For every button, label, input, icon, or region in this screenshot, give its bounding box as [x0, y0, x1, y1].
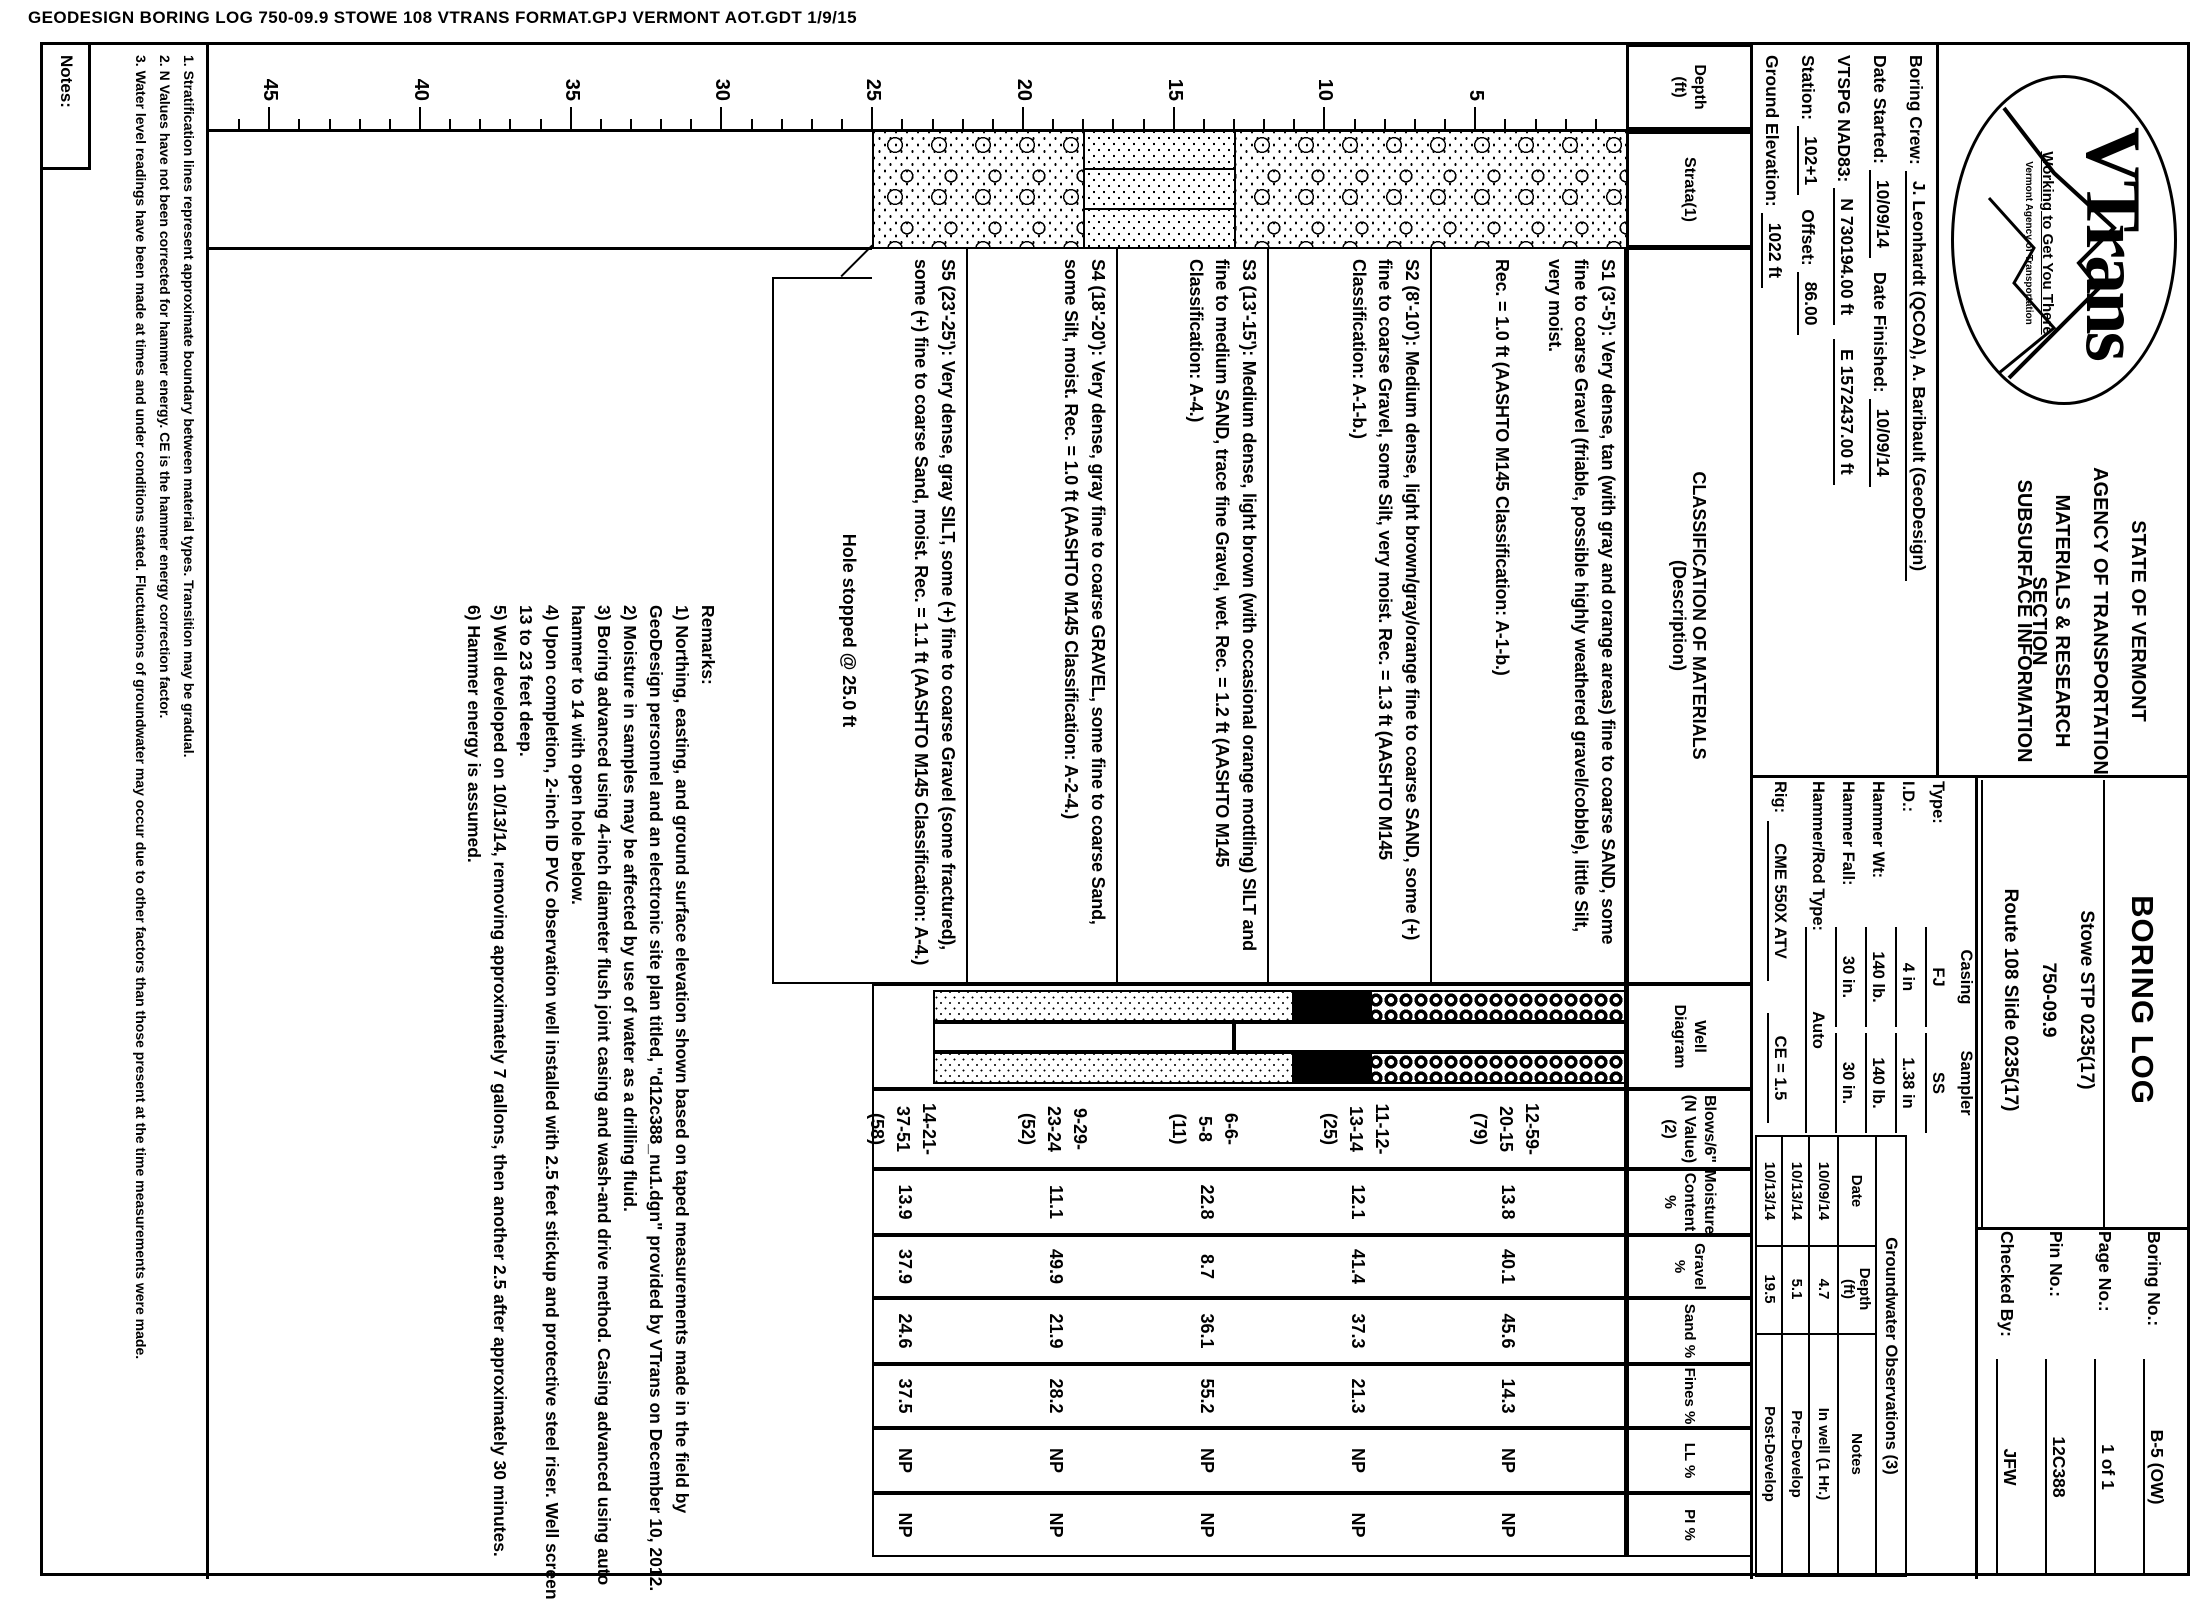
form-field-row: Pin No.:12C388 — [2045, 1231, 2075, 1575]
strata-boundary — [872, 132, 874, 247]
form-field-row: Page No.:1 of 1 — [2094, 1231, 2124, 1575]
depth-minor-tick — [329, 119, 331, 129]
equipment-value: 30 in. — [1835, 927, 1857, 1027]
gw-cell: Pre-Develop — [1783, 1333, 1810, 1575]
depth-minor-tick — [992, 119, 994, 129]
project-line: 750-09.9 — [2037, 777, 2059, 1223]
column-header-ll: LL % — [1626, 1428, 1753, 1493]
remark-item: 1) Northing, easting, and ground surface… — [643, 605, 695, 1605]
agency-line: AGENCY OF TRANSPORTATION — [2088, 465, 2111, 777]
depth-minor-tick — [1595, 119, 1597, 129]
gw-col-header: Depth (ft) — [1839, 1245, 1873, 1333]
pi-value-S5: NP — [894, 1493, 915, 1557]
fines-value-S2: 21.3 — [1347, 1364, 1368, 1428]
info-row: Date Started:10/09/14Date Finished:10/09… — [1869, 55, 1899, 771]
equipment-value: 140 lb. — [1865, 1033, 1887, 1133]
depth-major-tick — [419, 107, 421, 129]
gw-cell: 10/09/14 — [1810, 1137, 1837, 1245]
form-fields: Boring No.:B-5 (OW)Page No.:1 of 1Pin No… — [1979, 1231, 2179, 1575]
depth-minor-tick — [811, 119, 813, 129]
depth-label: 20 — [1012, 51, 1035, 101]
agency-line: STATE OF VERMONT — [2126, 465, 2149, 777]
depth-minor-tick — [932, 119, 934, 129]
gw-cell: In well (1 Hr.) — [1810, 1333, 1837, 1575]
column-header-gravel: Gravel % — [1626, 1235, 1753, 1298]
depth-minor-tick — [1504, 119, 1506, 129]
depth-minor-tick — [298, 119, 300, 129]
depth-label: 30 — [710, 51, 733, 101]
depth-major-tick — [1474, 107, 1476, 129]
sand-value-S2: 37.3 — [1347, 1298, 1368, 1364]
fines-value-S3: 55.2 — [1196, 1364, 1217, 1428]
logo-org: Vermont Agency of Transportation — [2023, 78, 2034, 408]
equipment-value: 1.38 in — [1895, 1033, 1917, 1133]
depth-minor-tick — [962, 119, 964, 129]
remarks-block: Remarks:1) Northing, easting, and ground… — [461, 605, 721, 1605]
form-field-value: 12C388 — [2045, 1359, 2069, 1575]
pi-value-S4: NP — [1045, 1493, 1066, 1557]
form-field-value: 1 of 1 — [2094, 1359, 2118, 1575]
agency-line: SUBSURFACE INFORMATION — [2012, 465, 2035, 777]
remark-item: 3) Boring advanced using 4-inch diameter… — [565, 605, 617, 1605]
form-title: BORING LOG — [2107, 777, 2177, 1223]
depth-minor-tick — [1414, 119, 1416, 129]
moisture-value-S3: 22.8 — [1196, 1169, 1217, 1235]
depth-label: 15 — [1163, 51, 1186, 101]
project-block: Stowe STP 0235(17)750-09.9Route 108 Slid… — [1983, 777, 2103, 1223]
strata-layer-sand-gravel — [1234, 132, 1626, 247]
sample-description: S2 (8'-10'): Medium dense, light brown/g… — [1346, 259, 1426, 972]
pi-value-S3: NP — [1196, 1493, 1217, 1557]
depth-minor-tick — [509, 119, 511, 129]
depth-major-tick — [871, 107, 873, 129]
strata-layer-sand-gravel — [872, 132, 1083, 247]
depth-minor-tick — [1263, 119, 1265, 129]
strata-layer-layered-fine — [1083, 132, 1234, 247]
note-item: 1. Stratification lines represent approx… — [177, 55, 201, 1535]
divider — [1936, 45, 1939, 778]
hammer-efficiency: CE = 1.5 — [1767, 1013, 1789, 1123]
divider — [2103, 780, 2105, 1227]
rig-label: Rig: — [1770, 781, 1789, 813]
depth-label: 35 — [560, 51, 583, 101]
well-annulus-chips — [1370, 1052, 1626, 1084]
equipment-value: FJ — [1925, 927, 1947, 1027]
rotated-sheet: VTrans Working to Get You There Vermont … — [0, 0, 2200, 1610]
equipment-value: 30 in. — [1835, 1033, 1857, 1133]
column-header-fines: Fines % — [1626, 1364, 1753, 1428]
fines-value-S1: 14.3 — [1497, 1364, 1518, 1428]
well-pipe-riser — [1234, 1022, 1626, 1052]
column-header-pi: PI % — [1626, 1493, 1753, 1557]
column-header-moisture: Moisture Content % — [1626, 1169, 1753, 1235]
info-label: Offset: — [1797, 209, 1818, 271]
classification-block-S3: S3 (13'-15'): Medium dense, light brown … — [1116, 249, 1267, 982]
depth-minor-tick — [449, 119, 451, 129]
gravel-value-S2: 41.4 — [1347, 1235, 1368, 1298]
boring-log-page: { "print_header": "GEODESIGN BORING LOG … — [0, 0, 2200, 1610]
column-header-strata: Strata(1) — [1626, 132, 1753, 247]
remark-item: 4) Upon completion, 2-inch ID PVC observ… — [513, 605, 565, 1605]
depth-minor-tick — [1112, 119, 1114, 129]
equipment-label: Type: — [1928, 781, 1947, 824]
gw-col-header: Notes — [1839, 1333, 1873, 1575]
agency-block: STATE OF VERMONTAGENCY OF TRANSPORTATION… — [1979, 465, 2149, 777]
sample-recovery: Rec. = 1.0 ft (AASHTO M145 Classificatio… — [1489, 259, 1516, 972]
info-fields: Boring Crew:J. Leonhardt (QCOA), A. Bari… — [1755, 55, 1935, 771]
column-header-blows: Blows/6" (N Value)(2) — [1626, 1089, 1753, 1169]
print-header: GEODESIGN BORING LOG 750-09.9 STOWE 108 … — [28, 8, 857, 28]
notes-label-cell: Notes: — [43, 45, 91, 170]
info-value: 10/09/14 — [1869, 399, 1893, 487]
form-field-label: Page No.: — [2094, 1231, 2115, 1359]
gw-cell: 10/13/14 — [1783, 1137, 1810, 1245]
form-field-label: Boring No.: — [2143, 1231, 2164, 1359]
blows-value-S2: 11-12- 13-14 (25) — [1317, 1089, 1395, 1169]
depth-minor-tick — [781, 119, 783, 129]
ll-value-S1: NP — [1497, 1428, 1518, 1493]
equipment-col-casing: Casing — [1956, 927, 1975, 1027]
info-value: N 730194.00 ft — [1833, 188, 1857, 325]
info-row: Station:102+1Offset:86.00 — [1797, 55, 1827, 771]
moisture-value-S5: 13.9 — [894, 1169, 915, 1235]
well-annulus-seal — [1294, 990, 1370, 1022]
form-field-row: Checked By:JFW — [1996, 1231, 2026, 1575]
moisture-value-S1: 13.8 — [1497, 1169, 1518, 1235]
gravel-value-S1: 40.1 — [1497, 1235, 1518, 1298]
depth-minor-tick — [751, 119, 753, 129]
blows-value-S1: 12-59- 20-15 (79) — [1467, 1089, 1545, 1169]
sand-value-S5: 24.6 — [894, 1298, 915, 1364]
pi-value-S1: NP — [1497, 1493, 1518, 1557]
fines-value-S4: 28.2 — [1045, 1364, 1066, 1428]
strata-layer-line — [1083, 168, 1234, 170]
well-annulus-seal — [1294, 1052, 1370, 1084]
depth-minor-tick — [389, 119, 391, 129]
sample-description: S5 (23'-25'): Very dense, gray SILT, som… — [908, 259, 961, 972]
well-annulus-chips — [1370, 990, 1626, 1022]
strata-boundary — [1234, 132, 1236, 247]
sample-description: S3 (13'-15'): Medium dense, light brown … — [1183, 259, 1263, 972]
info-label: Ground Elevation: — [1761, 55, 1782, 213]
gravel-value-S3: 8.7 — [1196, 1235, 1217, 1298]
column-header-depth: Depth (ft) — [1626, 45, 1753, 129]
depth-minor-tick — [660, 119, 662, 129]
depth-major-tick — [1323, 107, 1325, 129]
remark-item: 6) Hammer energy is assumed. — [461, 605, 487, 1605]
classification-block-S5: S5 (23'-25'): Very dense, gray SILT, som… — [872, 249, 966, 982]
info-value: 86.00 — [1797, 272, 1821, 336]
fines-value-S5: 37.5 — [894, 1364, 915, 1428]
moisture-value-S2: 12.1 — [1347, 1169, 1368, 1235]
info-row: Ground Elevation:1022 ft — [1761, 55, 1791, 771]
page-frame: VTrans Working to Get You There Vermont … — [40, 42, 2190, 1576]
sample-description: S1 (3'-5'): Very dense, tan (with gray a… — [1542, 259, 1622, 972]
equipment-label: Hammer Fall: — [1838, 781, 1857, 886]
depth-label: 25 — [861, 51, 884, 101]
well-annulus-sandpack — [933, 990, 1294, 1022]
depth-major-tick — [268, 107, 270, 129]
divider — [1753, 775, 2187, 778]
depth-minor-tick — [1535, 119, 1537, 129]
depth-label: 40 — [409, 51, 432, 101]
gw-cell: 4.7 — [1810, 1245, 1837, 1333]
info-row: VTSPG NAD83:N 730194.00 ftE 1572437.00 f… — [1833, 55, 1863, 771]
gw-header-line — [1875, 1137, 1877, 1575]
equipment-col-sampler: Sampler — [1956, 1033, 1975, 1133]
remark-item: 2) Moisture in samples may be affected b… — [617, 605, 643, 1605]
depth-minor-tick — [1354, 119, 1356, 129]
logo-tagline: Working to Get You There — [2039, 78, 2056, 408]
moisture-value-S4: 11.1 — [1045, 1169, 1066, 1235]
depth-minor-tick — [630, 119, 632, 129]
notes-top-line — [206, 45, 209, 1579]
depth-minor-tick — [841, 119, 843, 129]
info-value: J. Leonhardt (QCOA), A. Baribault (GeoDe… — [1905, 171, 1929, 581]
gw-cell: 19.5 — [1756, 1245, 1783, 1333]
info-value: 102+1 — [1797, 126, 1821, 195]
depth-minor-tick — [600, 119, 602, 129]
depth-minor-tick — [1384, 119, 1386, 129]
divider — [1975, 775, 1978, 1579]
depth-minor-tick — [238, 119, 240, 129]
column-header-cls: CLASSIFICATION OF MATERIALS (Description… — [1626, 247, 1753, 984]
form-field-value: JFW — [1996, 1359, 2020, 1575]
gw-col-line — [1757, 1333, 1877, 1335]
depth-minor-tick — [1143, 119, 1145, 129]
classification-block-S4: S4 (18'-20'): Very dense, gray fine to c… — [966, 249, 1116, 982]
info-label: Date Finished: — [1869, 272, 1890, 399]
strata-layer-line — [1083, 208, 1234, 210]
depth-minor-tick — [1233, 119, 1235, 129]
depth-major-tick — [1173, 107, 1175, 129]
note-item: 3. Water level readings have been made a… — [129, 55, 153, 1535]
remarks-label: Remarks: — [695, 605, 721, 1605]
depth-minor-tick — [901, 119, 903, 129]
info-value: E 1572437.00 ft — [1833, 339, 1857, 485]
notes-label: Notes: — [56, 55, 76, 108]
info-value: 1022 ft — [1761, 213, 1785, 288]
form-field-label: Checked By: — [1996, 1231, 2017, 1359]
info-label: Boring Crew: — [1905, 55, 1926, 171]
depth-minor-tick — [1052, 119, 1054, 129]
depth-minor-tick — [690, 119, 692, 129]
hole-stopped-note: Hole stopped @ 25.0 ft — [832, 279, 866, 982]
logo-cell: VTrans Working to Get You There Vermont … — [1941, 53, 2181, 463]
rig-value: CME 550X ATV — [1767, 821, 1789, 981]
depth-major-tick — [570, 107, 572, 129]
depth-minor-tick — [540, 119, 542, 129]
depth-minor-tick — [1565, 119, 1567, 129]
gw-cell: 10/13/14 — [1756, 1137, 1783, 1245]
column-header-well: Well Diagram — [1626, 984, 1753, 1089]
remark-item: 5) Well developed on 10/13/14, removing … — [487, 605, 513, 1605]
depth-label: 45 — [258, 51, 281, 101]
project-line: Stowe STP 0235(17) — [2075, 777, 2097, 1223]
divider — [1977, 1227, 2187, 1230]
depth-minor-tick — [479, 119, 481, 129]
depth-minor-tick — [1444, 119, 1446, 129]
classification-block-S1: S1 (3'-5'): Very dense, tan (with gray a… — [1430, 249, 1626, 982]
depth-minor-tick — [1293, 119, 1295, 129]
notes-items: 1. Stratification lines represent approx… — [129, 55, 201, 1555]
well-annulus-sandpack — [933, 1052, 1294, 1084]
ll-value-S3: NP — [1196, 1428, 1217, 1493]
form-field-row: Boring No.:B-5 (OW) — [2143, 1231, 2173, 1575]
depth-label: 5 — [1464, 51, 1487, 101]
gw-subheader-line — [1837, 1137, 1839, 1575]
well-pipe-screen — [933, 1022, 1234, 1052]
form-field-value: B-5 (OW) — [2143, 1359, 2167, 1575]
pi-value-S2: NP — [1347, 1493, 1368, 1557]
note-item: 2. N Values have not been corrected for … — [153, 55, 177, 1535]
ll-value-S2: NP — [1347, 1428, 1368, 1493]
strata-boundary — [1083, 132, 1085, 247]
ll-value-S5: NP — [894, 1428, 915, 1493]
info-label: Date Started: — [1869, 55, 1890, 170]
sample-description: S4 (18'-20'): Very dense, gray fine to c… — [1058, 259, 1111, 972]
vtrans-logo: VTrans Working to Get You There Vermont … — [1951, 75, 2177, 405]
info-row: Boring Crew:J. Leonhardt (QCOA), A. Bari… — [1905, 55, 1935, 771]
equipment-value: 4 in — [1895, 927, 1917, 1027]
depth-major-tick — [720, 107, 722, 129]
ll-value-S4: NP — [1045, 1428, 1066, 1493]
depth-major-tick — [1022, 107, 1024, 129]
blows-value-S5: 14-21- 37-51 (58) — [864, 1089, 942, 1169]
gw-col-line — [1757, 1245, 1877, 1247]
equipment-label: I.D.: — [1898, 781, 1917, 812]
divider — [1981, 780, 1983, 1227]
equipment-value: 140 lb. — [1865, 927, 1887, 1027]
depth-minor-tick — [1082, 119, 1084, 129]
equipment-value: SS — [1925, 1033, 1947, 1133]
equipment-value: Auto — [1805, 927, 1827, 1133]
blows-value-S4: 9-29- 23-24 (52) — [1015, 1089, 1093, 1169]
info-label: Station: — [1797, 55, 1818, 126]
depth-minor-tick — [359, 119, 361, 129]
sand-value-S3: 36.1 — [1196, 1298, 1217, 1364]
gw-col-header: Date — [1839, 1137, 1873, 1245]
depth-label: 10 — [1313, 51, 1336, 101]
classification-block-S2: S2 (8'-10'): Medium dense, light brown/g… — [1267, 249, 1430, 982]
equipment-table: CasingSamplerType:FJSSI.D.:4 in1.38 inHa… — [1755, 777, 1975, 1133]
sand-value-S4: 21.9 — [1045, 1298, 1066, 1364]
gravel-value-S4: 49.9 — [1045, 1235, 1066, 1298]
groundwater-table: Groundwater Observations (3) DateDepth (… — [1755, 1135, 1907, 1577]
gw-cell: 5.1 — [1783, 1245, 1810, 1333]
hole-stopped-box: Hole stopped @ 25.0 ft — [772, 277, 872, 984]
depth-minor-tick — [1203, 119, 1205, 129]
form-field-label: Pin No.: — [2045, 1231, 2066, 1359]
sand-value-S1: 45.6 — [1497, 1298, 1518, 1364]
column-header-sand: Sand % — [1626, 1298, 1753, 1364]
project-line: Route 108 Slide 0235(17) — [1999, 777, 2021, 1223]
gw-cell: Post-Develop — [1756, 1333, 1783, 1575]
gravel-value-S5: 37.9 — [894, 1235, 915, 1298]
logo-brand: VTrans — [2074, 78, 2152, 408]
groundwater-title: Groundwater Observations (3) — [1877, 1137, 1905, 1575]
info-label: VTSPG NAD83: — [1833, 55, 1854, 188]
equipment-label: Hammer Wt: — [1868, 781, 1887, 878]
blows-value-S3: 6-6- 5-8 (11) — [1166, 1089, 1244, 1169]
equipment-label: Hammer/Rod Type: — [1808, 781, 1827, 931]
info-value: 10/09/14 — [1869, 170, 1893, 258]
